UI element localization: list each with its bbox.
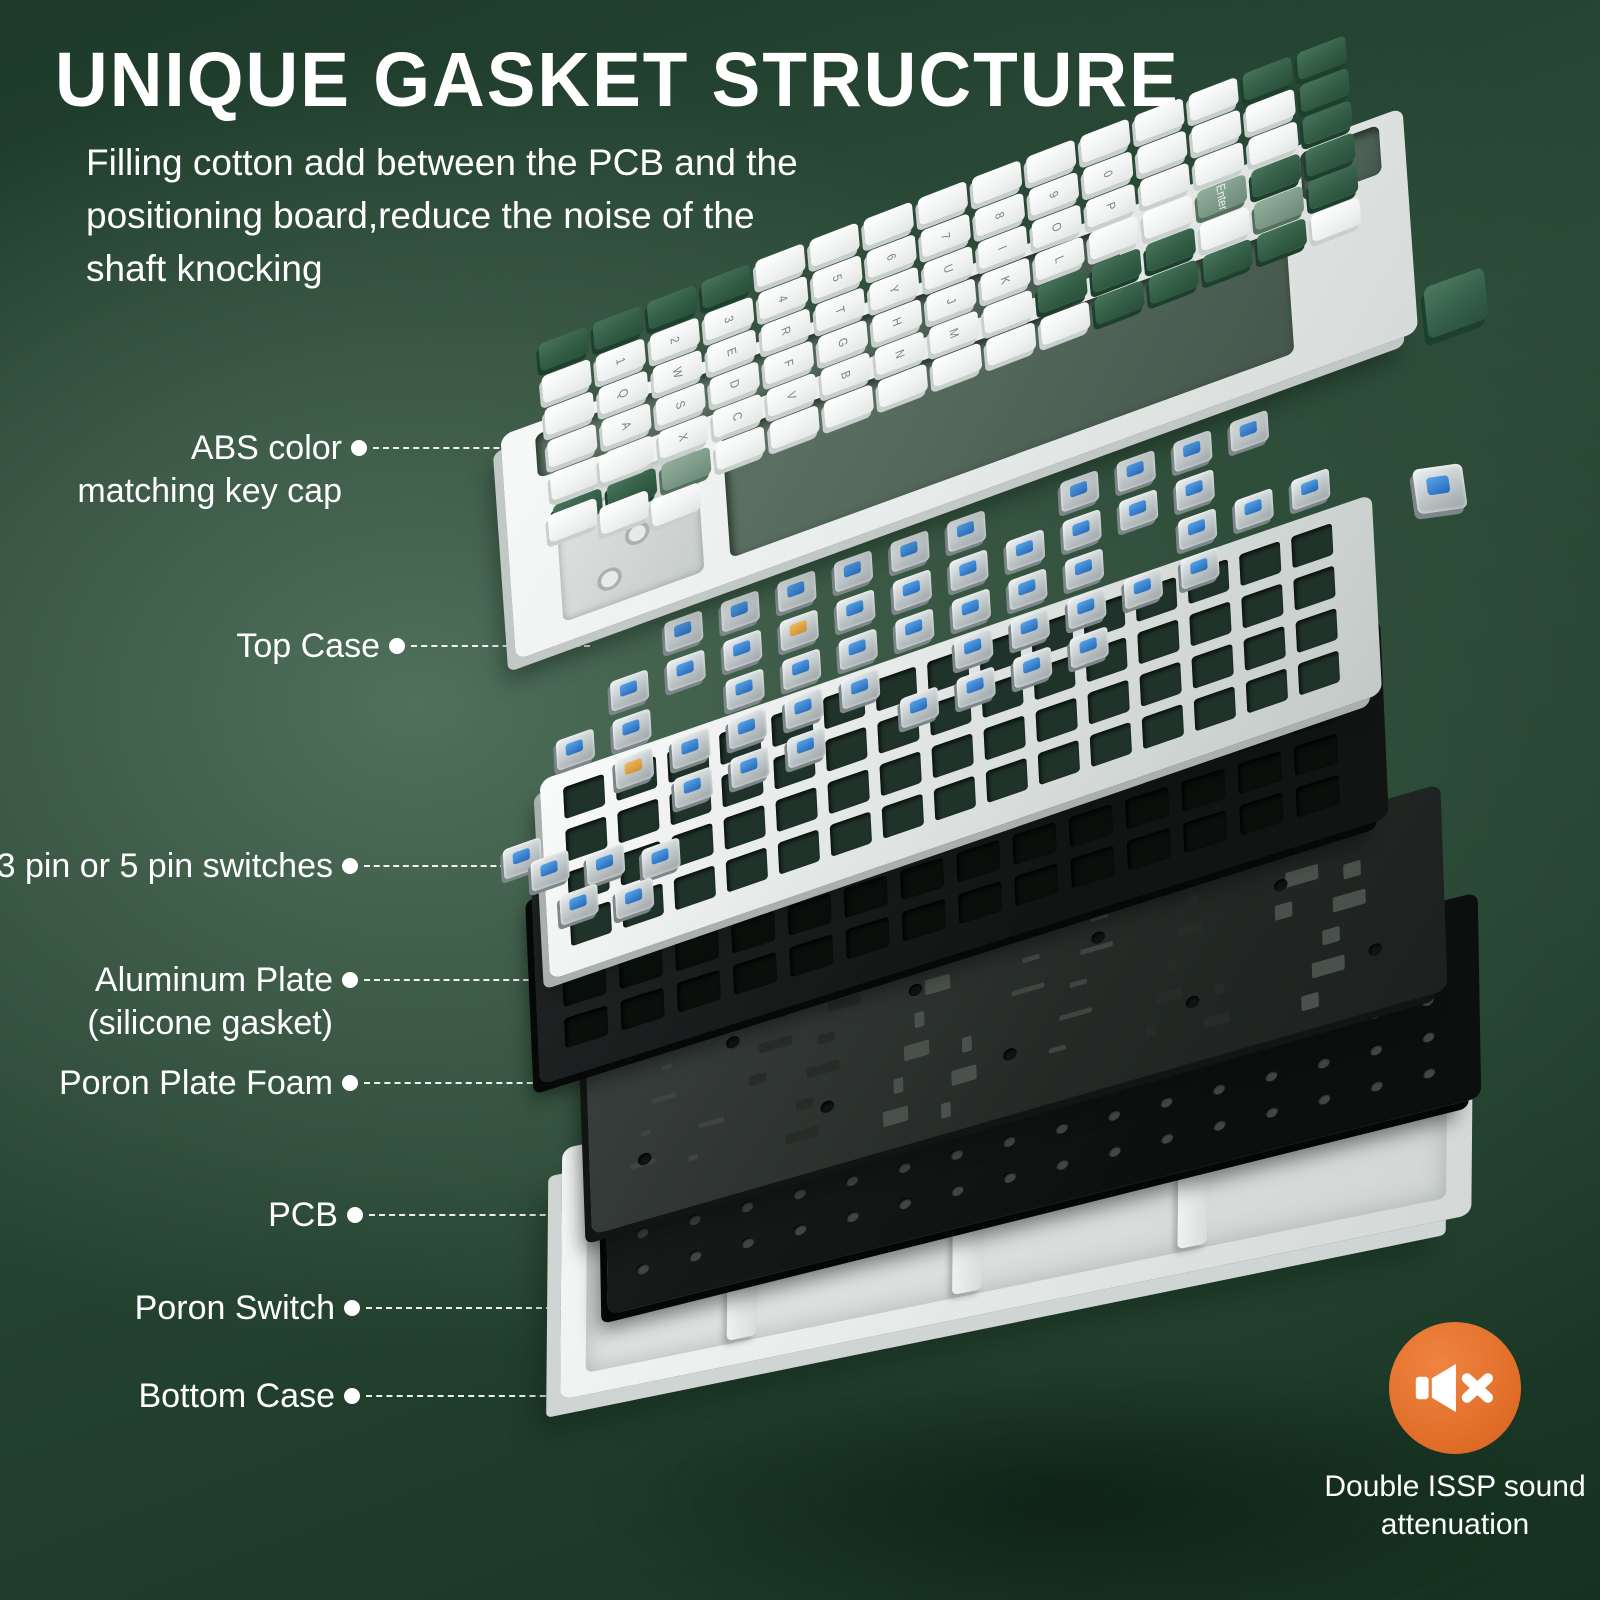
pcb-component [1091, 912, 1108, 922]
blue-switch [895, 608, 935, 651]
pcb-component [688, 1154, 698, 1162]
sheet-hole [1056, 1157, 1069, 1171]
plate-hole [986, 758, 1028, 804]
product-poster: UNIQUE GASKET STRUCTURE Filling cotton a… [0, 0, 1600, 1600]
pcb-component [828, 993, 861, 1012]
callout-label-poron-plate-foam: Poron Plate Foam [59, 1062, 333, 1105]
foam-hole [1296, 774, 1340, 817]
blue-switch [900, 686, 940, 729]
foam-hole [956, 840, 1000, 883]
pcb-component [651, 1092, 676, 1104]
blue-switch [612, 708, 652, 751]
sound-attenuation-badge [1389, 1322, 1521, 1454]
plate-hole [931, 733, 973, 779]
callout-dot [351, 440, 367, 456]
sheet-hole [636, 1262, 649, 1276]
pcb-component [759, 1035, 792, 1054]
pcb-hole [726, 1035, 740, 1050]
blue-switch [890, 530, 930, 573]
badge-caption-line: Double ISSP sound [1285, 1468, 1600, 1506]
callout-label-switches: 3 pin or 5 pin switches [0, 845, 333, 888]
blue-switch [834, 550, 874, 593]
callout-label-pcb: PCB [268, 1194, 338, 1237]
pcb-component [962, 1035, 972, 1053]
blue-switch [841, 667, 881, 710]
plate-hole [1088, 679, 1130, 725]
plate-hole [1035, 697, 1077, 743]
sheet-hole [950, 1147, 963, 1161]
sheet-hole [741, 1200, 754, 1214]
plate-hole [879, 751, 921, 797]
sheet-hole [1107, 1108, 1120, 1122]
blue-switch [1173, 430, 1213, 473]
foam-hole [846, 916, 890, 959]
pcb-component [1167, 958, 1177, 971]
callout-label-line: Poron Switch [135, 1287, 335, 1330]
pcb-component [1301, 992, 1319, 1012]
sheet-hole [951, 1184, 964, 1198]
sheet-hole [898, 1160, 911, 1174]
blue-switch [1065, 548, 1105, 591]
sheet-hole [1055, 1121, 1068, 1135]
blue-switch [1234, 488, 1274, 531]
plate-hole [1140, 661, 1182, 707]
blue-switch [947, 510, 987, 553]
blue-switch [784, 687, 824, 730]
blue-switch [664, 610, 704, 653]
blue-switch [723, 629, 763, 672]
foam-hole [1181, 769, 1225, 812]
blue-switch [1069, 626, 1109, 669]
pcb-component [796, 1097, 814, 1112]
blue-switch [730, 746, 770, 789]
callout-label-bottom-case: Bottom Case [138, 1375, 335, 1418]
callout-label-abs-keycap: ABS colormatching key cap [77, 427, 342, 513]
callout-label-line: Bottom Case [138, 1375, 335, 1418]
plate-hole [830, 811, 872, 857]
blue-switch [838, 628, 878, 671]
plate-hole [983, 715, 1025, 761]
callout-dot [347, 1207, 363, 1223]
blue-switch [1291, 468, 1331, 511]
pcb-component [1156, 987, 1181, 1004]
pcb-component [1214, 983, 1224, 996]
foam-hole [1183, 810, 1227, 853]
blue-switch [956, 666, 996, 709]
pcb-component [1177, 921, 1202, 938]
pcb-component [1012, 982, 1045, 996]
blue-switch [1175, 469, 1215, 512]
pcb-component [883, 1105, 909, 1127]
orange-switch [780, 609, 820, 652]
sheet-hole [1160, 1095, 1173, 1109]
badge-caption: Double ISSP sound attenuation [1285, 1468, 1600, 1544]
plate-hole [1296, 608, 1338, 654]
foam-hole [733, 952, 777, 995]
pcb-hole [638, 1151, 652, 1166]
blue-switch [556, 728, 596, 771]
sheet-hole [1370, 1079, 1383, 1093]
blue-switch [836, 589, 876, 632]
foam-hole [1014, 863, 1058, 906]
sheet-hole [1213, 1118, 1226, 1132]
pcb-component [1333, 888, 1366, 912]
sheet-hole [1318, 1092, 1331, 1106]
sheet-hole [845, 1174, 858, 1188]
blue-switch [1008, 568, 1048, 611]
blue-switch [893, 569, 933, 612]
sheet-hole [1369, 1043, 1382, 1057]
foam-hole [789, 934, 833, 977]
pcb-component [1022, 954, 1039, 964]
sheet-hole [1317, 1056, 1330, 1070]
sheet-hole [741, 1236, 754, 1250]
blue-switch [610, 669, 650, 712]
blue-switch [1060, 470, 1100, 513]
plate-hole [723, 805, 765, 851]
foam-hole [1125, 786, 1169, 829]
pcb-component [1343, 860, 1361, 880]
blue-switch [1180, 547, 1220, 590]
blue-switch [1011, 607, 1051, 650]
callout-dot [389, 638, 405, 654]
plate-hole [1192, 644, 1234, 690]
callout-label-line: Poron Plate Foam [59, 1062, 333, 1105]
foam-hole [958, 881, 1002, 924]
foam-hole [787, 893, 831, 936]
plate-hole [1244, 626, 1286, 672]
sheet-hole [794, 1223, 807, 1237]
foam-hole [1013, 822, 1057, 865]
plate-hole [1090, 722, 1132, 768]
blue-switch [787, 726, 827, 769]
blue-switch [728, 707, 768, 750]
sheet-hole [1422, 1030, 1435, 1044]
sheet-hole [1212, 1082, 1225, 1096]
pcb-component [941, 1101, 951, 1119]
plate-hole [775, 787, 817, 833]
callout-label-line: 3 pin or 5 pin switches [0, 845, 333, 888]
blue-switch [666, 649, 706, 692]
plate-hole [778, 829, 820, 875]
loose-green-keycap [1423, 266, 1489, 339]
pcb-component [925, 973, 951, 995]
pcb-hole [1368, 942, 1382, 957]
callout-label-line: ABS color [77, 427, 342, 470]
foam-hole [1069, 804, 1113, 847]
foam-hole [1238, 751, 1282, 794]
plate-hole [1194, 686, 1236, 732]
blue-switch [1062, 509, 1102, 552]
sheet-hole [1422, 1066, 1435, 1080]
sheet-hole [1003, 1134, 1016, 1148]
sheet-hole [1160, 1131, 1173, 1145]
callout-label-line: matching key cap [77, 470, 342, 513]
callout-label-line: PCB [268, 1194, 338, 1237]
pcb-component [1204, 1012, 1229, 1029]
pcb-component [1059, 1007, 1092, 1021]
plate-hole [726, 847, 768, 893]
pcb-component [1312, 954, 1345, 978]
callout-label-line: Aluminum Plate [87, 959, 333, 1002]
foam-hole [564, 1005, 608, 1048]
pcb-component [914, 1011, 924, 1029]
pcb-component [662, 1063, 672, 1071]
callout-dot [342, 1075, 358, 1091]
callout-label-poron-switch: Poron Switch [135, 1287, 335, 1330]
callout-label-line: (silicone gasket) [87, 1002, 333, 1045]
plate-hole [934, 775, 976, 821]
orange-switch [615, 747, 655, 790]
sheet-hole [1264, 1069, 1277, 1083]
plate-hole [1298, 650, 1340, 696]
pcb-component [904, 1039, 930, 1061]
pcb-hole [1003, 1047, 1017, 1062]
callout-dot [344, 1300, 360, 1316]
pcb-component [699, 1116, 724, 1128]
blue-switch [1006, 529, 1046, 572]
plate-hole [827, 769, 869, 815]
blue-switch [952, 588, 992, 631]
blue-switch [671, 727, 711, 770]
blue-switch [777, 570, 817, 613]
blue-switch [725, 668, 765, 711]
blue-switch [674, 766, 714, 809]
foam-hole [1127, 828, 1171, 871]
foam-hole [620, 987, 664, 1030]
blue-switch [1119, 489, 1159, 532]
badge-caption-line: attenuation [1285, 1506, 1600, 1544]
foam-hole [844, 875, 888, 918]
blue-switch [1178, 508, 1218, 551]
blue-switch [1230, 410, 1270, 453]
sheet-hole [689, 1249, 702, 1263]
plate-hole [674, 865, 716, 911]
pcb-hole [820, 1099, 834, 1114]
pcb-component [749, 1072, 767, 1087]
foam-hole [1071, 845, 1115, 888]
pcb-component [1285, 864, 1318, 888]
muted-speaker-icon [1411, 1348, 1499, 1428]
callout-dot [342, 858, 358, 874]
blue-switch [1116, 450, 1156, 493]
pcb-hole [1274, 878, 1288, 893]
pcb-component [817, 1031, 835, 1046]
sheet-hole [1265, 1105, 1278, 1119]
foam-hole [900, 857, 944, 900]
sheet-hole [898, 1197, 911, 1211]
plate-hole [1246, 668, 1288, 714]
sheet-hole [1003, 1170, 1016, 1184]
plate-hole [1038, 740, 1080, 786]
callout-label-line: Top Case [236, 625, 380, 668]
foam-hole [731, 911, 775, 954]
blue-switch [1067, 587, 1107, 630]
foam-hole [1239, 792, 1283, 835]
pcb-component [1049, 1044, 1066, 1054]
pcb-component [641, 1129, 651, 1137]
blue-switch [1013, 646, 1053, 689]
sheet-hole [636, 1226, 649, 1240]
foam-hole [677, 970, 721, 1013]
pcb-component [786, 1125, 819, 1144]
blue-switch [1124, 567, 1164, 610]
pcb-component [1070, 978, 1087, 988]
pcb-hole [909, 982, 923, 997]
pcb-component [1146, 1024, 1156, 1037]
pcb-component [1322, 926, 1340, 946]
foam-hole [675, 928, 719, 971]
foam-hole [1294, 733, 1338, 776]
pcb-component [807, 1059, 840, 1078]
plate-hole [1142, 704, 1184, 750]
sheet-hole [793, 1187, 806, 1201]
pcb-component [893, 1077, 903, 1095]
plate-hole [882, 793, 924, 839]
callout-dot [342, 972, 358, 988]
pcb-hole [1186, 994, 1200, 1009]
pcb-component [1188, 892, 1198, 905]
sheet-hole [688, 1213, 701, 1227]
blue-switch [949, 549, 989, 592]
blue-switch [782, 648, 822, 691]
pcb-component [1275, 901, 1293, 921]
callout-label-top-case: Top Case [236, 625, 380, 668]
pcb-component [951, 1064, 977, 1086]
blue-switch [721, 590, 761, 633]
callout-dot [344, 1388, 360, 1404]
blue-switch [954, 627, 994, 670]
sheet-hole [1108, 1144, 1121, 1158]
foam-hole [902, 899, 946, 942]
sheet-hole [846, 1210, 859, 1224]
callout-label-aluminum-plate: Aluminum Plate(silicone gasket) [87, 959, 333, 1045]
keyboard-exploded-diagram: 1234567890QWERTYUIOPASDFGHJKLEnterZXCVBN… [0, 0, 1600, 1600]
